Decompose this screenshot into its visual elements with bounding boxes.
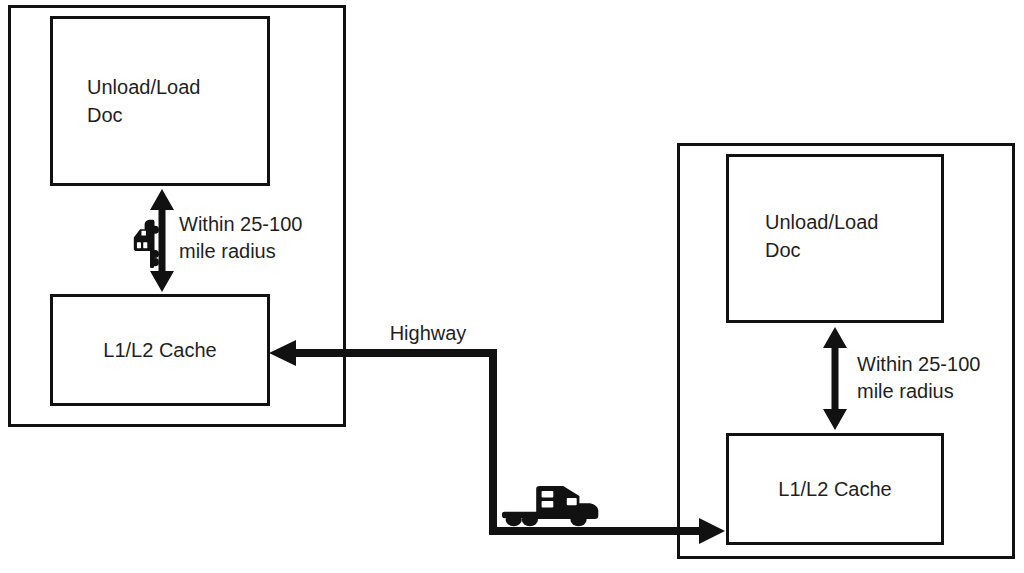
diagram-canvas: Unload/Load Doc L1/L2 Cache Unload/Load … xyxy=(0,0,1024,573)
left-cache-label: L1/L2 Cache xyxy=(103,338,216,362)
right-radius-note: Within 25-100 mile radius xyxy=(857,351,1009,405)
left-cache-box: L1/L2 Cache xyxy=(50,294,270,406)
left-radius-note: Within 25-100 mile radius xyxy=(179,211,331,265)
right-unload-dock-label: Unload/Load Doc xyxy=(765,208,897,264)
left-unload-dock-label: Unload/Load Doc xyxy=(87,73,219,129)
left-unload-dock-box: Unload/Load Doc xyxy=(50,16,270,186)
right-unload-dock-box: Unload/Load Doc xyxy=(726,154,944,323)
highway-line xyxy=(292,353,700,531)
highway-label: Highway xyxy=(348,321,508,345)
right-cache-label: L1/L2 Cache xyxy=(778,477,891,501)
right-cache-box: L1/L2 Cache xyxy=(726,433,944,545)
truck-icon xyxy=(502,486,598,526)
